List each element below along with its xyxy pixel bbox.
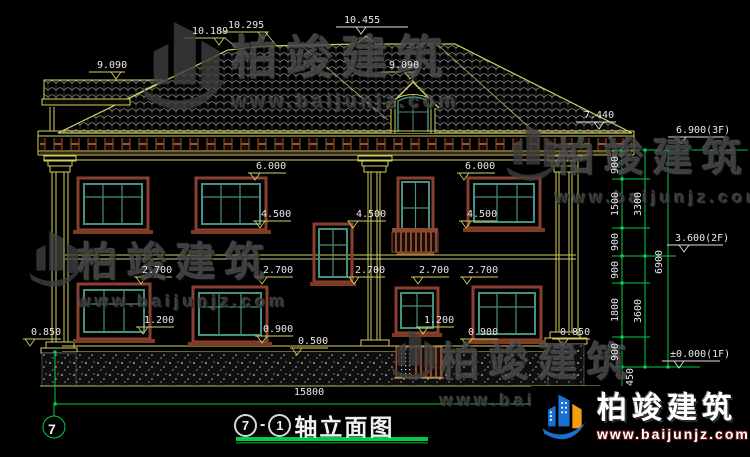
chain-dim-label: 450: [626, 368, 636, 386]
elevation-label: 6.900(3F): [676, 126, 730, 136]
elevation-label: 1.200: [144, 316, 174, 326]
elevation-label: 4.500: [356, 210, 386, 220]
brand-logo: 柏竣建筑 www.baijunjz.com: [531, 386, 750, 448]
chain-dim-label: 900: [611, 261, 621, 279]
chain-dim-label: 1500: [611, 192, 621, 216]
elevation-label: 7.440: [584, 111, 614, 121]
elevation-label: 10.189: [192, 27, 228, 37]
title-text: 轴立面图: [294, 408, 394, 442]
drawing-title: 7 - 1 轴立面图: [234, 408, 394, 442]
column-right: [545, 156, 587, 344]
window-2f-2: [191, 178, 271, 234]
floor-band: [65, 255, 576, 259]
balcony-door: [392, 178, 438, 253]
elevation-label: 6.000: [256, 162, 286, 172]
title-dash: -: [260, 416, 265, 434]
axis-end-bubble: 1: [268, 414, 291, 437]
elevation-label: 4.500: [467, 210, 497, 220]
elevation-label: 2.700: [142, 266, 172, 276]
chain-dim-label: 900: [611, 156, 621, 174]
brand-logo-icon: [535, 388, 591, 446]
brand-name: 柏竣建筑: [597, 394, 750, 424]
wing-fascia: [42, 99, 130, 105]
elevation-label: 4.500: [261, 210, 291, 220]
chain-dim-label: 900: [611, 233, 621, 251]
balcony-railing: [392, 228, 438, 232]
elevation-label: 6.000: [465, 162, 495, 172]
elevation-label: 10.295: [228, 21, 264, 31]
brand-url: www.baijunjz.com: [597, 427, 750, 441]
window-1f-2: [188, 287, 272, 346]
chain-dim-label: 3300: [634, 192, 644, 216]
elevation-label: 0.850: [31, 328, 61, 338]
elevation-label: 0.500: [298, 337, 328, 347]
axis-bubble-label: 7: [48, 421, 56, 437]
window-1f-3: [392, 288, 442, 337]
elevation-label: 10.455: [344, 16, 380, 26]
chain-dim-label: 1800: [611, 298, 621, 322]
elevation-label: 2.700: [419, 266, 449, 276]
window-2f-3: [463, 178, 545, 232]
cad-canvas: 柏竣建筑 www.baijunjz.com 柏竣建筑 www.baijunjz.…: [0, 0, 750, 457]
elevation-label: 3.600(2F): [675, 234, 729, 244]
elevation-label: 0.900: [263, 325, 293, 335]
dentil-band: [40, 138, 632, 150]
chain-dim-label: 900: [611, 343, 621, 361]
chain-dim-label: 3600: [634, 299, 644, 323]
axis-start-bubble: 7: [234, 414, 257, 437]
chain-dim-label: 6900: [655, 250, 665, 274]
plinth-hatch: [62, 352, 580, 386]
louver-box: [394, 347, 444, 378]
total-width-dim: 15800: [294, 387, 324, 398]
column-middle: [358, 156, 392, 346]
elevation-label: 2.700: [263, 266, 293, 276]
window-2f-1: [73, 178, 153, 234]
elevation-label: 2.700: [468, 266, 498, 276]
elevation-label: 9.090: [389, 61, 419, 71]
pedestal-right: [548, 344, 584, 386]
roof: [42, 32, 632, 133]
elevation-label: 0.900: [468, 328, 498, 338]
elevation-label: 1.200: [424, 316, 454, 326]
wing-bracket: [50, 107, 54, 131]
walls: [62, 160, 580, 352]
elevation-label: 2.700: [355, 266, 385, 276]
elevation-label: ±0.000(1F): [670, 350, 730, 360]
elevation-label: 0.850: [560, 328, 590, 338]
pedestal-left: [42, 353, 76, 386]
elevation-label: 9.090: [97, 61, 127, 71]
